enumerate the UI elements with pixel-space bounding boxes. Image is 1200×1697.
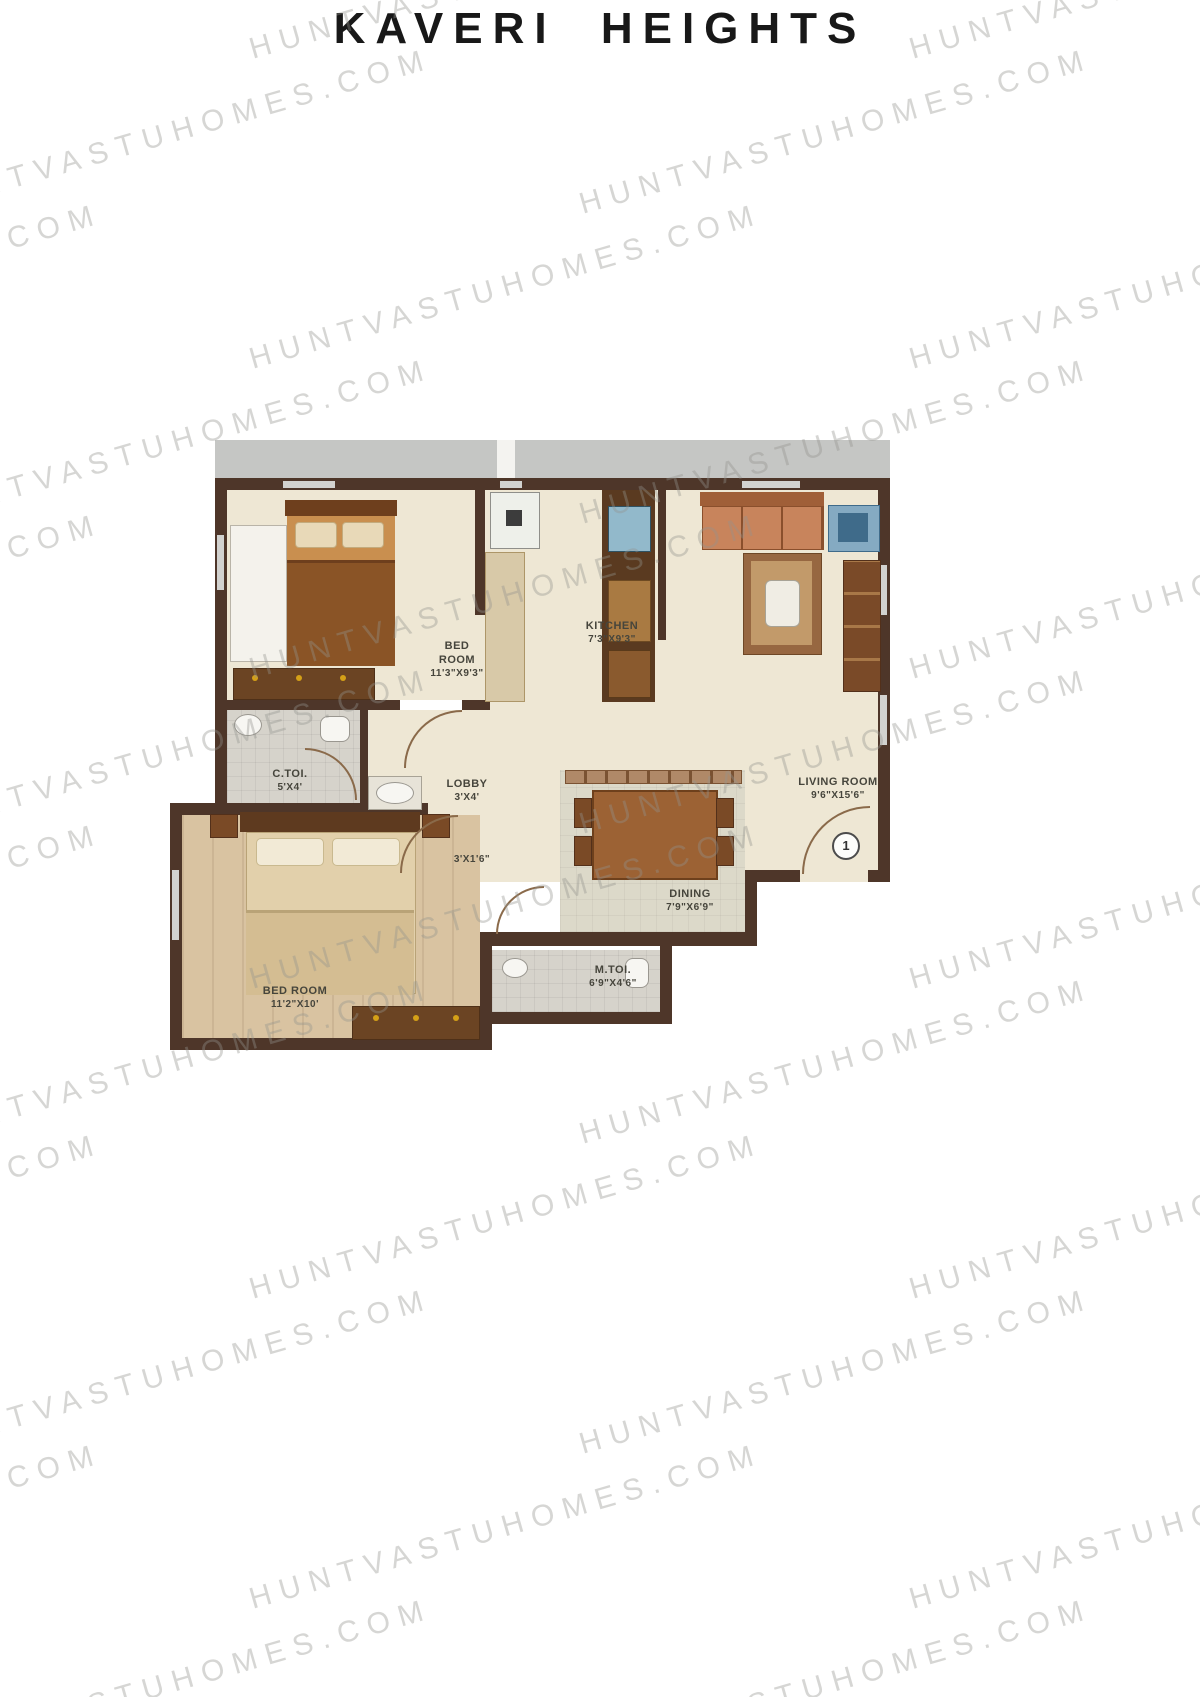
bedroom1-dresser [233, 668, 375, 700]
wardrobe-knob [373, 1015, 379, 1021]
watermark-text: HUNTVASTUHOMES.COM [0, 507, 106, 686]
watermark-text: HUNTVASTUHOMES.COM [906, 817, 1200, 996]
watermark-text: HUNTVASTUHOMES.COM [576, 42, 1096, 221]
kitchen-name: KITCHEN [552, 620, 672, 634]
dining-chair-2 [574, 836, 592, 866]
dining-chair-1 [574, 798, 592, 828]
bedroom1-wardrobe [230, 525, 287, 662]
watermark-text: HUNTVASTUHOMES.COM [0, 1437, 106, 1616]
wall-dining-mtoi [480, 932, 757, 946]
window-living-1 [880, 565, 887, 615]
wall-mtoi-bottom [480, 1012, 672, 1024]
lobby-name: LOBBY [427, 778, 507, 792]
watermark-text: HUNTVASTUHOMES.COM [906, 1437, 1200, 1616]
living-tv-unit [843, 560, 881, 692]
bedroom1-label: BED ROOM 11'3"X9'3" [407, 640, 507, 680]
ctoi-name: C.TOI. [240, 768, 340, 782]
kitchen-label: KITCHEN 7'3"X9'3" [552, 620, 672, 646]
watermark-text: HUNTVASTUHOMES.COM [906, 1127, 1200, 1306]
ctoi-label: C.TOI. 5'X4' [240, 768, 340, 794]
watermark-text: HUNTVASTUHOMES.COM [906, 197, 1200, 376]
kitchen-cabinet [608, 650, 651, 698]
floor-plan: 1 BED ROOM 11'3"X9'3" KITCHEN 7'3"X9'3" … [170, 440, 890, 1062]
wall-bedroom2-right [480, 935, 492, 1050]
living-room-dims: 9'6"X15'6" [763, 790, 913, 803]
dining-chair-4 [716, 836, 734, 866]
bedroom2-pillow-2 [332, 838, 400, 866]
watermark-text: HUNTVASTUHOMES.COM [0, 1282, 436, 1461]
bedroom2-name: BED ROOM [245, 985, 345, 999]
dining-dims: 7'9"X6'9" [630, 902, 750, 915]
window-living-2 [880, 695, 887, 745]
watermark-text: HUNTVASTUHOMES.COM [0, 1127, 106, 1306]
entrance-marker: 1 [832, 832, 860, 860]
mtoi-label: M.TOI. 6'9"X4'6" [563, 964, 663, 990]
watermark-text: HUNTVASTUHOMES.COM [0, 42, 436, 221]
ctoi-dims: 5'X4' [240, 782, 340, 795]
wardrobe-knob [413, 1015, 419, 1021]
bedroom2-wardrobe [352, 1006, 480, 1040]
living-sofa-back [700, 492, 824, 506]
corridor-strip [215, 440, 890, 478]
dining-table [592, 790, 718, 880]
window-top-2 [500, 481, 522, 488]
passage-label: 3'X1'6" [432, 854, 512, 867]
dresser-knob [296, 675, 302, 681]
watermark-text: HUNTVASTUHOMES.COM [246, 1437, 766, 1616]
watermark-text: HUNTVASTUHOMES.COM [246, 197, 766, 376]
dresser-knob [340, 675, 346, 681]
kitchen-sink [608, 506, 651, 552]
bedroom1-pillow-2 [342, 522, 384, 548]
wall-bedroom1-kitchen [475, 490, 485, 615]
mtoi-door-arc [496, 886, 544, 934]
mtoi-washbasin [502, 958, 528, 978]
ctoi-washbasin [234, 714, 262, 736]
watermark-text: HUNTVASTUHOMES.COM [0, 817, 106, 996]
bedroom1-bed-headboard [285, 500, 397, 516]
watermark-text: HUNTVASTUHOMES.COM [576, 1592, 1096, 1697]
lobby-dims: 3'X4' [427, 792, 507, 805]
window-top-3 [742, 481, 800, 488]
living-room-name: LIVING ROOM [763, 776, 913, 790]
dining-chair-3 [716, 798, 734, 828]
wall-kitchen-living [658, 490, 666, 640]
window-bedroom1 [217, 535, 224, 590]
wardrobe-knob [453, 1015, 459, 1021]
corridor-strip-notch [497, 440, 515, 478]
bedroom2-label: BED ROOM 11'2"X10' [245, 985, 345, 1011]
living-table-center [765, 580, 800, 627]
dining-window-strip [565, 770, 742, 784]
bedroom1-bed-blanket [287, 560, 395, 666]
bedroom1-name: BED ROOM [434, 640, 480, 668]
living-side-table-top [838, 513, 868, 542]
kitchen-dims: 7'3"X9'3" [552, 634, 672, 647]
watermark-text: HUNTVASTUHOMES.COM [0, 1592, 436, 1697]
page-title: KAVERI HEIGHTS [0, 4, 1200, 54]
bedroom1-dims: 11'3"X9'3" [407, 668, 507, 681]
watermark-text: HUNTVASTUHOMES.COM [0, 197, 106, 376]
wall-living-bottom-b [868, 870, 890, 882]
bedroom2-dims: 11'2"X10' [245, 999, 345, 1012]
bedroom2-pillow-1 [256, 838, 324, 866]
ctoi-wc [320, 716, 350, 742]
dresser-knob [252, 675, 258, 681]
dining-name: DINING [630, 888, 750, 902]
bedroom2-blanket [246, 910, 414, 995]
wall-bedroom1-bottom-a [215, 700, 400, 710]
watermark-text: HUNTVASTUHOMES.COM [576, 1282, 1096, 1461]
bedroom2-bed-headboard [240, 812, 420, 832]
mtoi-dims: 6'9"X4'6" [563, 978, 663, 991]
lobby-label: LOBBY 3'X4' [427, 778, 507, 804]
passage-dims: 3'X1'6" [432, 854, 512, 867]
watermark-text: HUNTVASTUHOMES.COM [246, 1127, 766, 1306]
living-sofa-seat [702, 506, 824, 550]
watermark-text: HUNTVASTUHOMES.COM [906, 507, 1200, 686]
living-room-label: LIVING ROOM 9'6"X15'6" [763, 776, 913, 802]
page: KAVERI HEIGHTS [0, 0, 1200, 1697]
wall-lobby-ctoi [360, 710, 368, 805]
bedroom1-pillow-1 [295, 522, 337, 548]
mtoi-name: M.TOI. [563, 964, 663, 978]
kitchen-fridge-icon [506, 510, 522, 526]
dining-label: DINING 7'9"X6'9" [630, 888, 750, 914]
window-bedroom2 [172, 870, 179, 940]
wall-left-upper [215, 478, 227, 808]
bedroom2-side-table-1 [210, 814, 238, 838]
window-top-1 [283, 481, 335, 488]
wash-basin [376, 782, 414, 804]
